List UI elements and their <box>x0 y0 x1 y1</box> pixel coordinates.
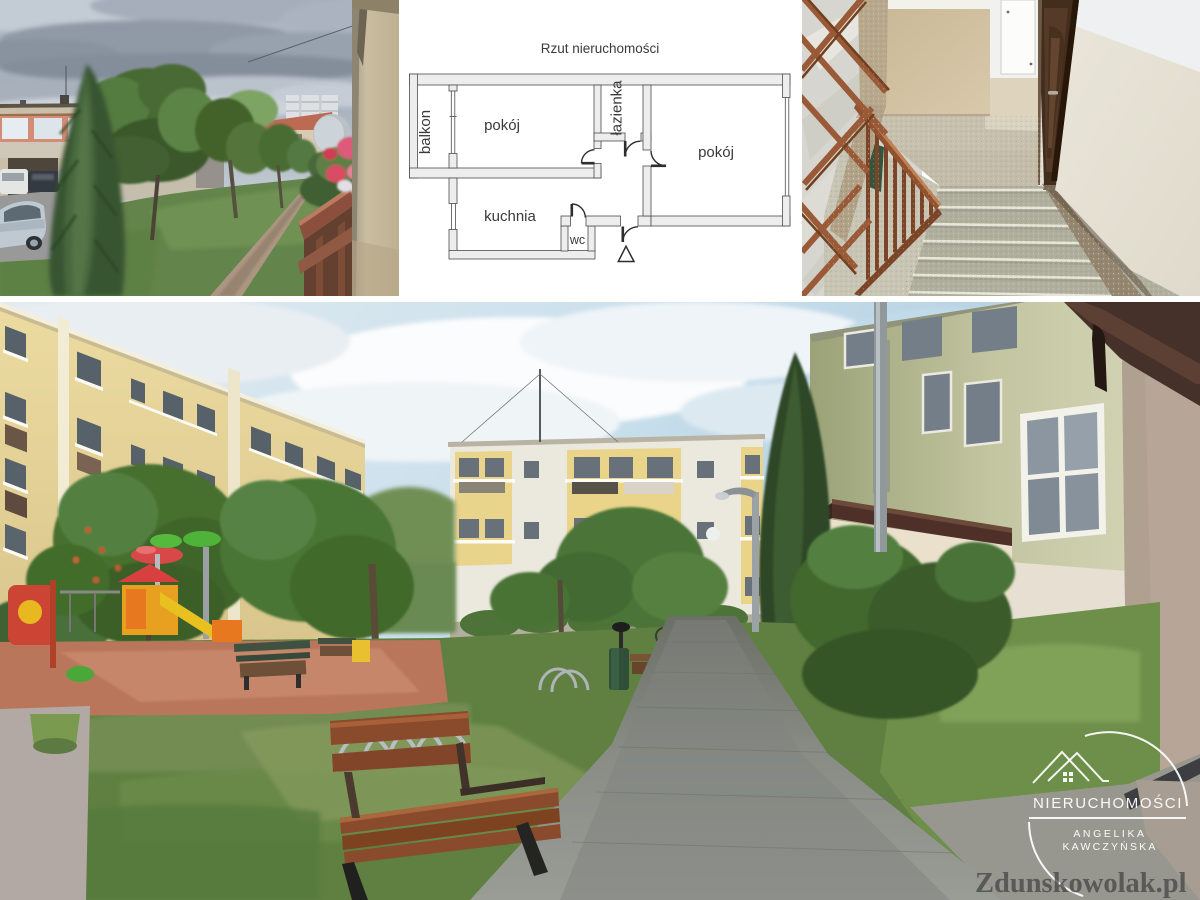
svg-text:Zdunskowolak.pl: Zdunskowolak.pl <box>975 868 1187 899</box>
svg-text:kuchnia: kuchnia <box>484 208 536 225</box>
svg-text:balkon: balkon <box>417 110 434 154</box>
svg-text:KAWCZYŃSKA: KAWCZYŃSKA <box>1062 840 1157 853</box>
svg-text:pokój: pokój <box>698 144 734 161</box>
svg-text:łazienka: łazienka <box>609 80 626 136</box>
svg-text:NIERUCHOMOŚCI: NIERUCHOMOŚCI <box>1033 794 1183 812</box>
svg-text:wc: wc <box>569 233 585 247</box>
svg-text:Rzut nieruchomości: Rzut nieruchomości <box>541 41 660 56</box>
svg-text:pokój: pokój <box>484 117 520 134</box>
svg-text:ANGELIKA: ANGELIKA <box>1073 828 1146 840</box>
